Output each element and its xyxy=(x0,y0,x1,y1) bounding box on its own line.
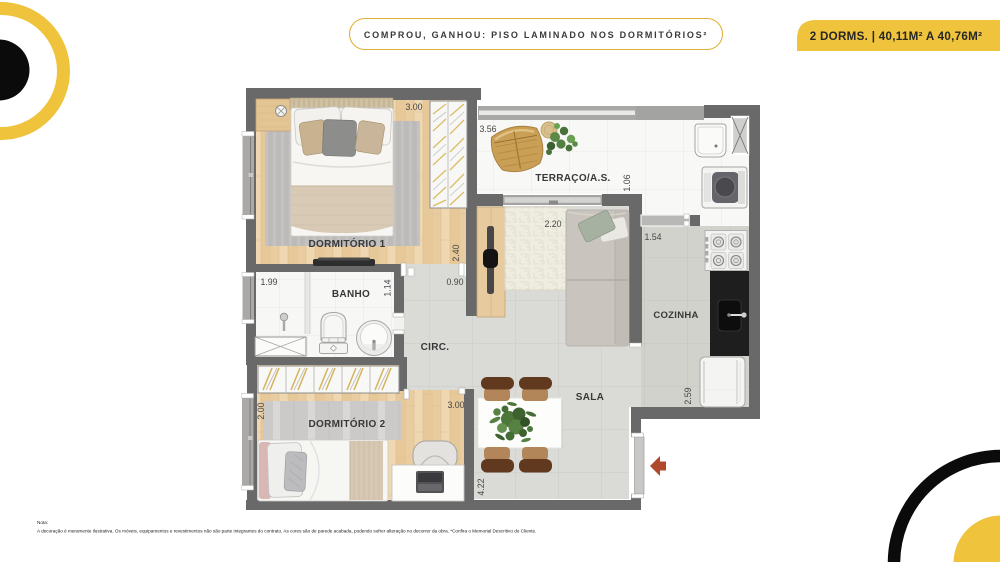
svg-text:1.54: 1.54 xyxy=(644,232,661,242)
svg-text:0.90: 0.90 xyxy=(446,277,463,287)
svg-text:3.00: 3.00 xyxy=(447,400,464,410)
svg-text:4.22: 4.22 xyxy=(476,478,486,495)
svg-text:COMPROU, GANHOU: PISO LAMINADO: COMPROU, GANHOU: PISO LAMINADO NOS DORMI… xyxy=(364,29,708,40)
svg-text:2.20: 2.20 xyxy=(544,219,561,229)
svg-text:3.00: 3.00 xyxy=(405,102,422,112)
svg-text:TERRAÇO/A.S.: TERRAÇO/A.S. xyxy=(535,173,610,184)
svg-text:A decoração é meramente ilustr: A decoração é meramente ilustrativa. Os … xyxy=(37,529,536,534)
svg-text:DORMITÓRIO 1: DORMITÓRIO 1 xyxy=(309,237,386,250)
svg-text:BANHO: BANHO xyxy=(332,289,370,300)
svg-text:Nota:: Nota: xyxy=(37,520,48,525)
svg-text:2.40: 2.40 xyxy=(451,244,461,261)
svg-text:DORMITÓRIO 2: DORMITÓRIO 2 xyxy=(309,417,386,430)
svg-text:2.59: 2.59 xyxy=(683,387,693,404)
svg-text:COZINHA: COZINHA xyxy=(653,310,698,321)
svg-text:SALA: SALA xyxy=(576,392,604,403)
svg-text:1.99: 1.99 xyxy=(260,277,277,287)
svg-text:1.14: 1.14 xyxy=(383,279,393,296)
svg-text:2.00: 2.00 xyxy=(256,402,266,419)
svg-text:CIRC.: CIRC. xyxy=(421,342,450,353)
svg-text:1.06: 1.06 xyxy=(622,174,632,191)
svg-text:2 DORMS. | 40,11M² A 40,76M²: 2 DORMS. | 40,11M² A 40,76M² xyxy=(810,30,983,43)
svg-text:3.56: 3.56 xyxy=(479,124,496,134)
